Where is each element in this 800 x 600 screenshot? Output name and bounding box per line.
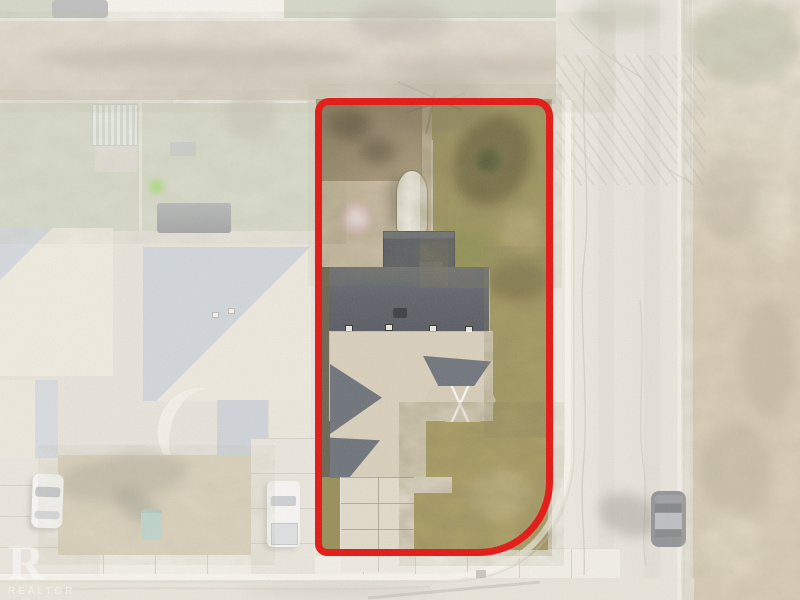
aerial-photo: R REALTOR — [0, 0, 800, 600]
photo-grain — [0, 0, 800, 600]
